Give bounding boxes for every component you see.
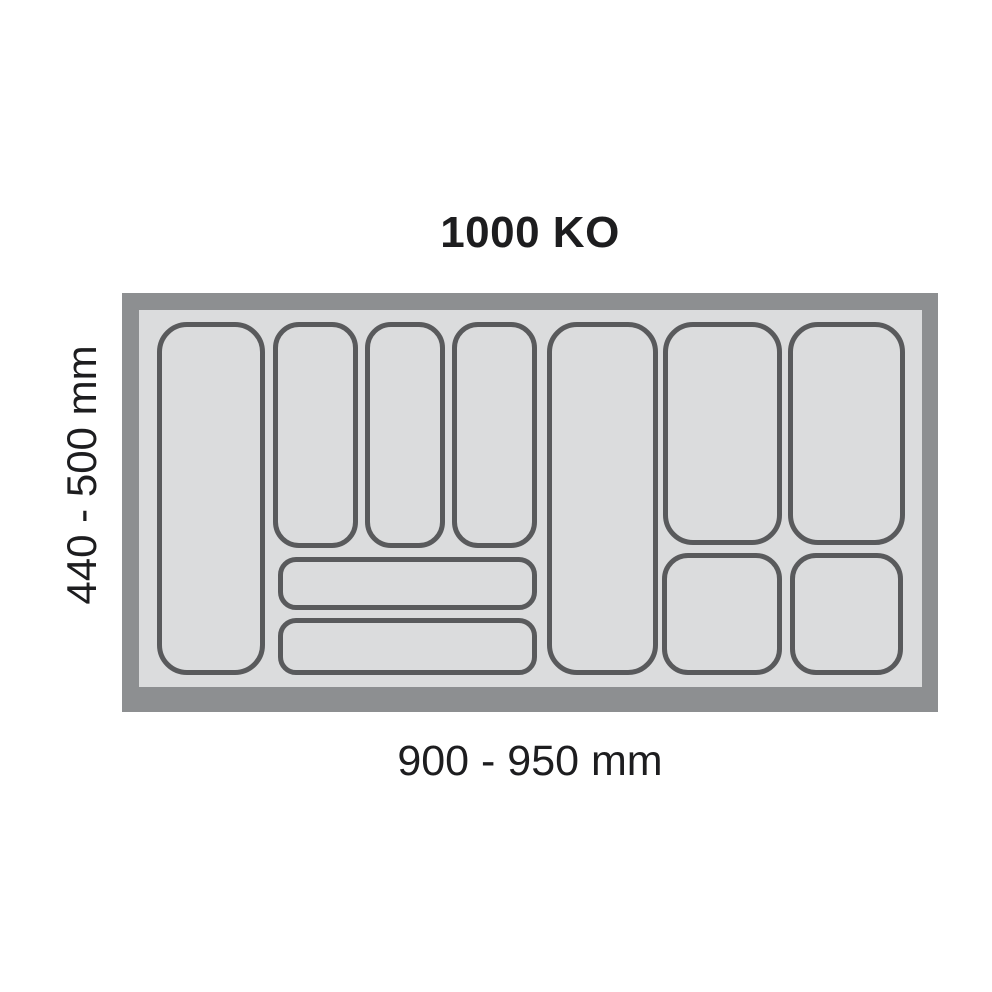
height-dimension-label: 440 - 500 mm	[58, 345, 106, 604]
compartment-left-tall	[157, 322, 265, 675]
compartment-right-small-1	[662, 553, 782, 675]
compartment-middle-tall	[547, 322, 658, 675]
compartment-narrow-1	[273, 322, 358, 548]
compartment-narrow-3	[452, 322, 537, 548]
compartment-right-tall-2	[788, 322, 905, 545]
compartment-wide-upper	[278, 557, 537, 610]
compartment-right-small-2	[790, 553, 903, 675]
product-title: 1000 KO	[122, 208, 938, 258]
compartment-narrow-2	[365, 322, 445, 548]
compartment-right-tall-1	[663, 322, 782, 545]
product-diagram-page: 1000 KO 440 - 500 mm 900 - 950 mm	[0, 0, 992, 992]
cutlery-tray-frame	[122, 293, 938, 712]
width-dimension-label: 900 - 950 mm	[122, 737, 938, 786]
compartment-wide-lower	[278, 618, 537, 675]
